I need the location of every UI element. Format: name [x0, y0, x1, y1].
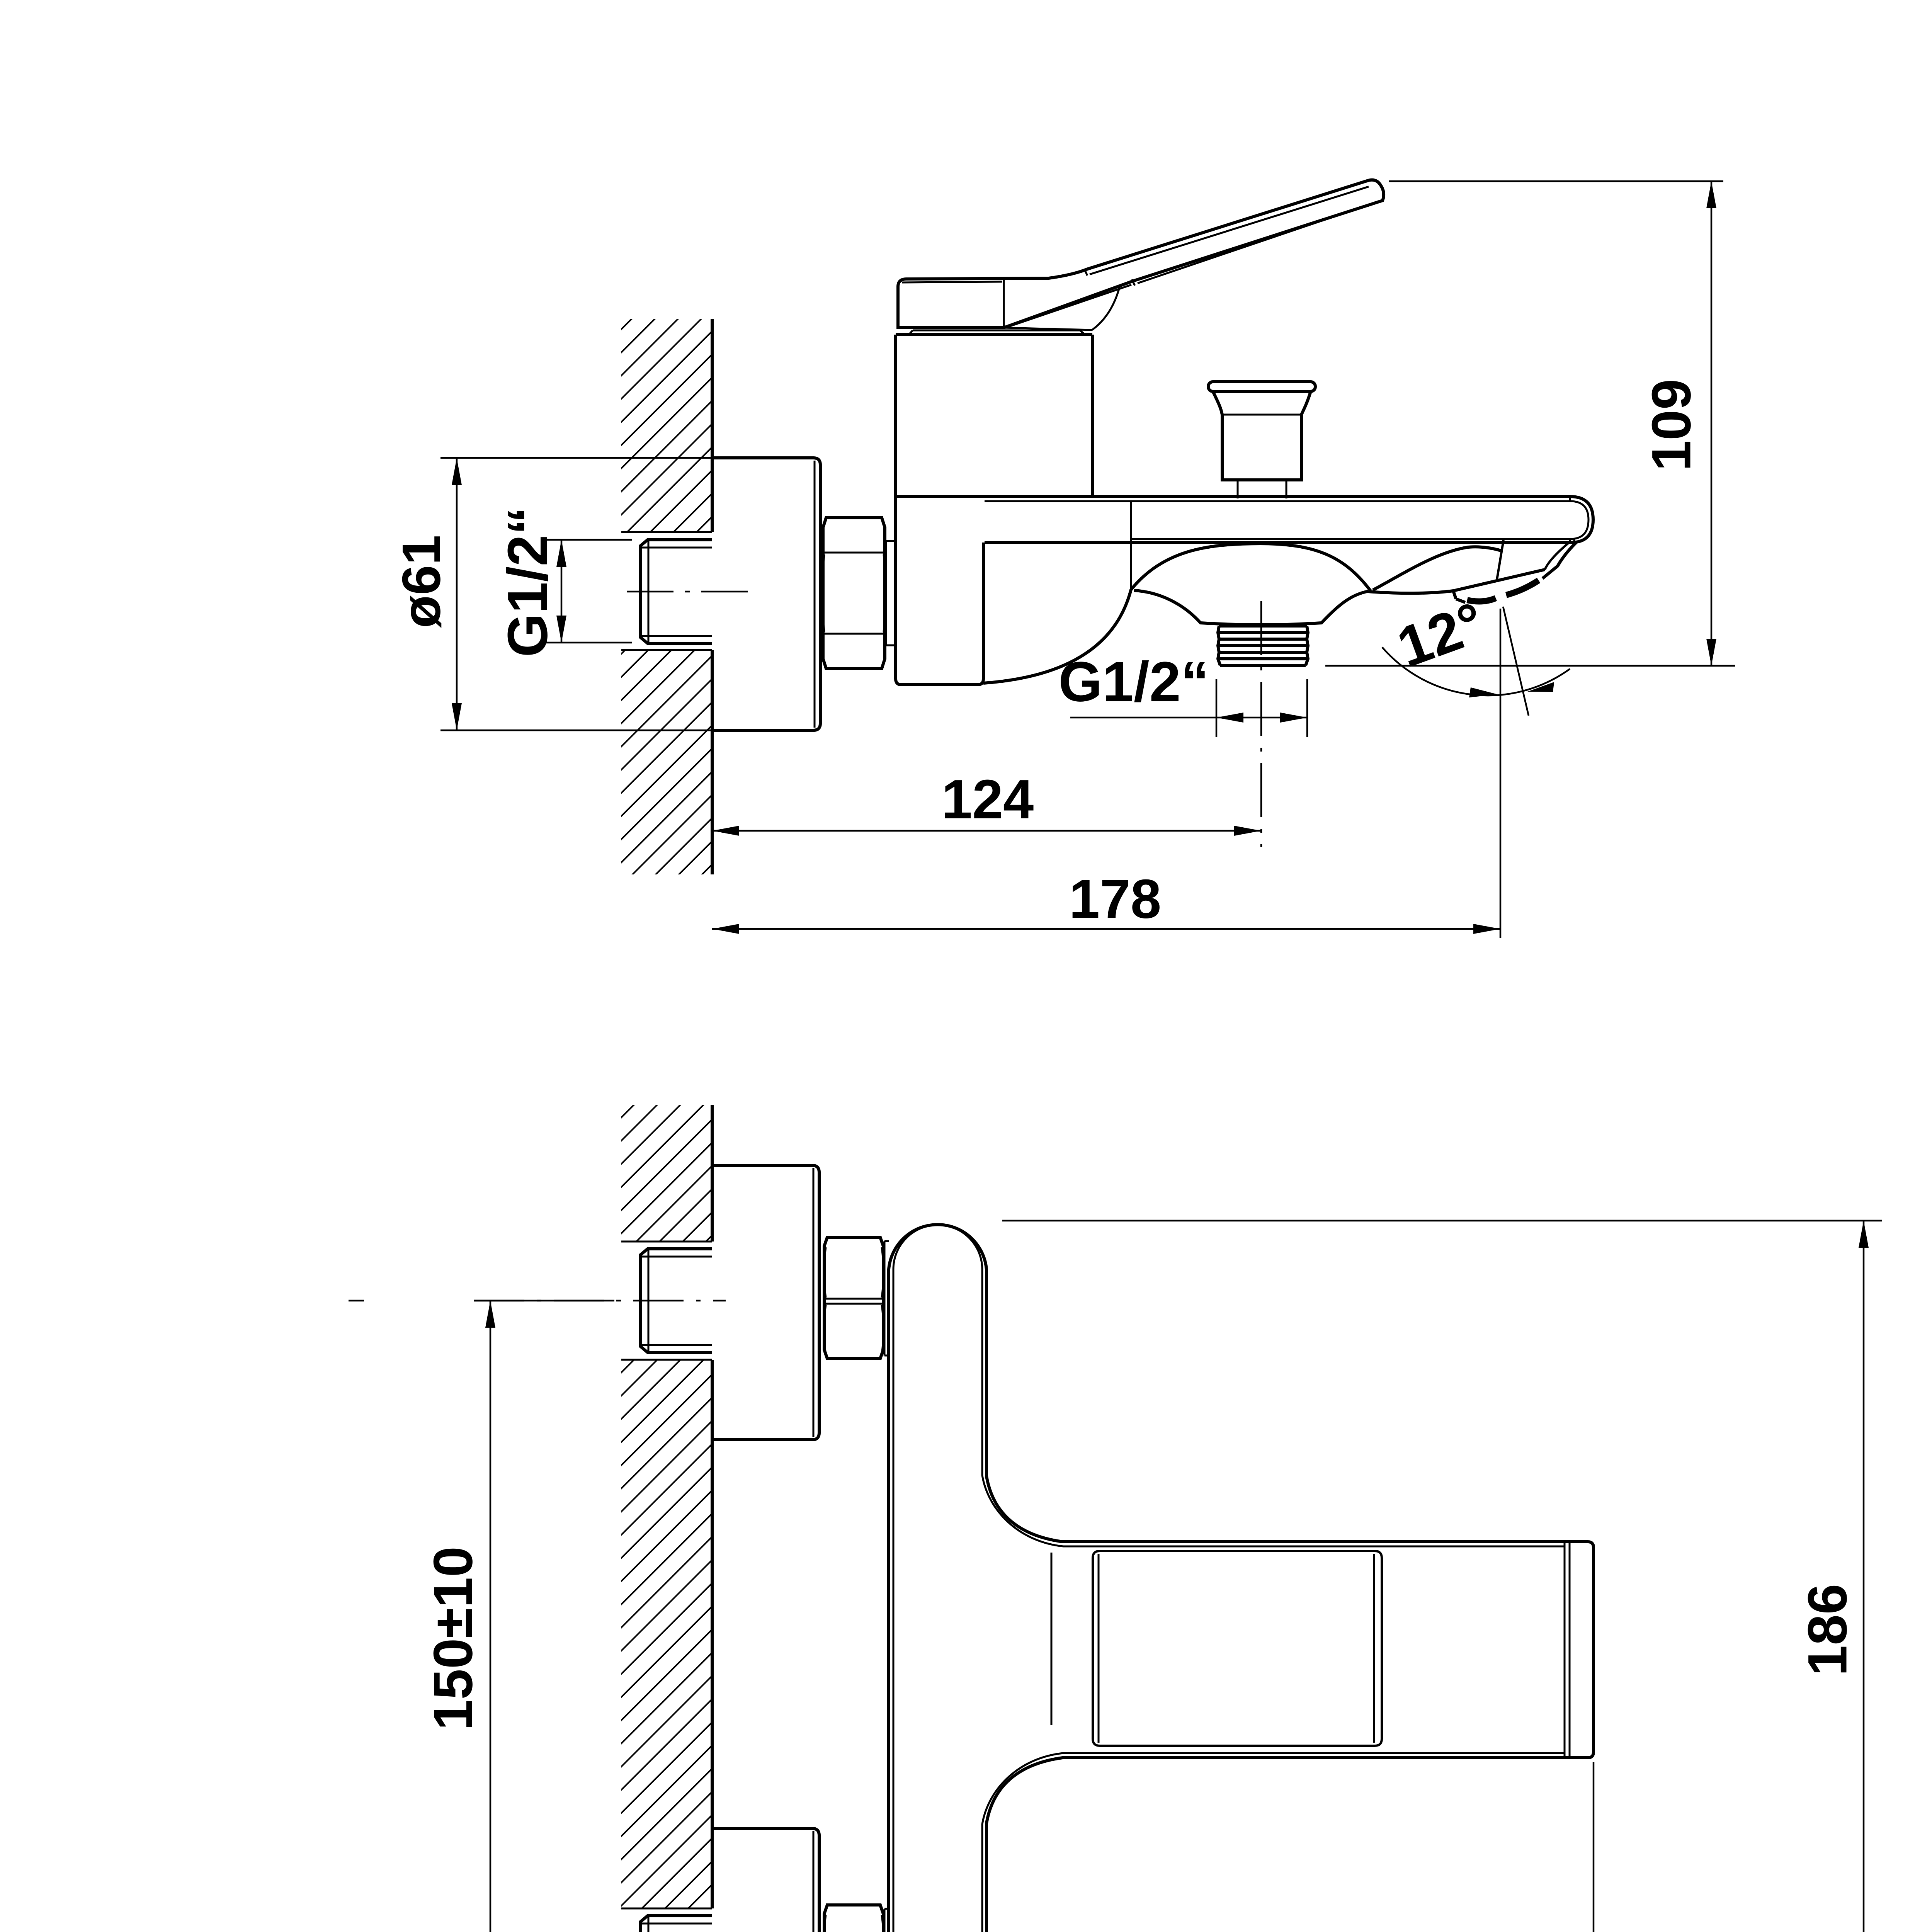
svg-text:178: 178 — [1069, 869, 1162, 930]
svg-text:109: 109 — [1641, 379, 1702, 471]
svg-text:186: 186 — [1797, 1584, 1859, 1676]
svg-text:124: 124 — [942, 769, 1034, 830]
svg-text:ø61: ø61 — [391, 535, 452, 628]
svg-text:150±10: 150±10 — [423, 1546, 484, 1730]
svg-text:G1/2“: G1/2“ — [496, 507, 559, 657]
svg-text:G1/2“: G1/2“ — [1058, 650, 1209, 713]
